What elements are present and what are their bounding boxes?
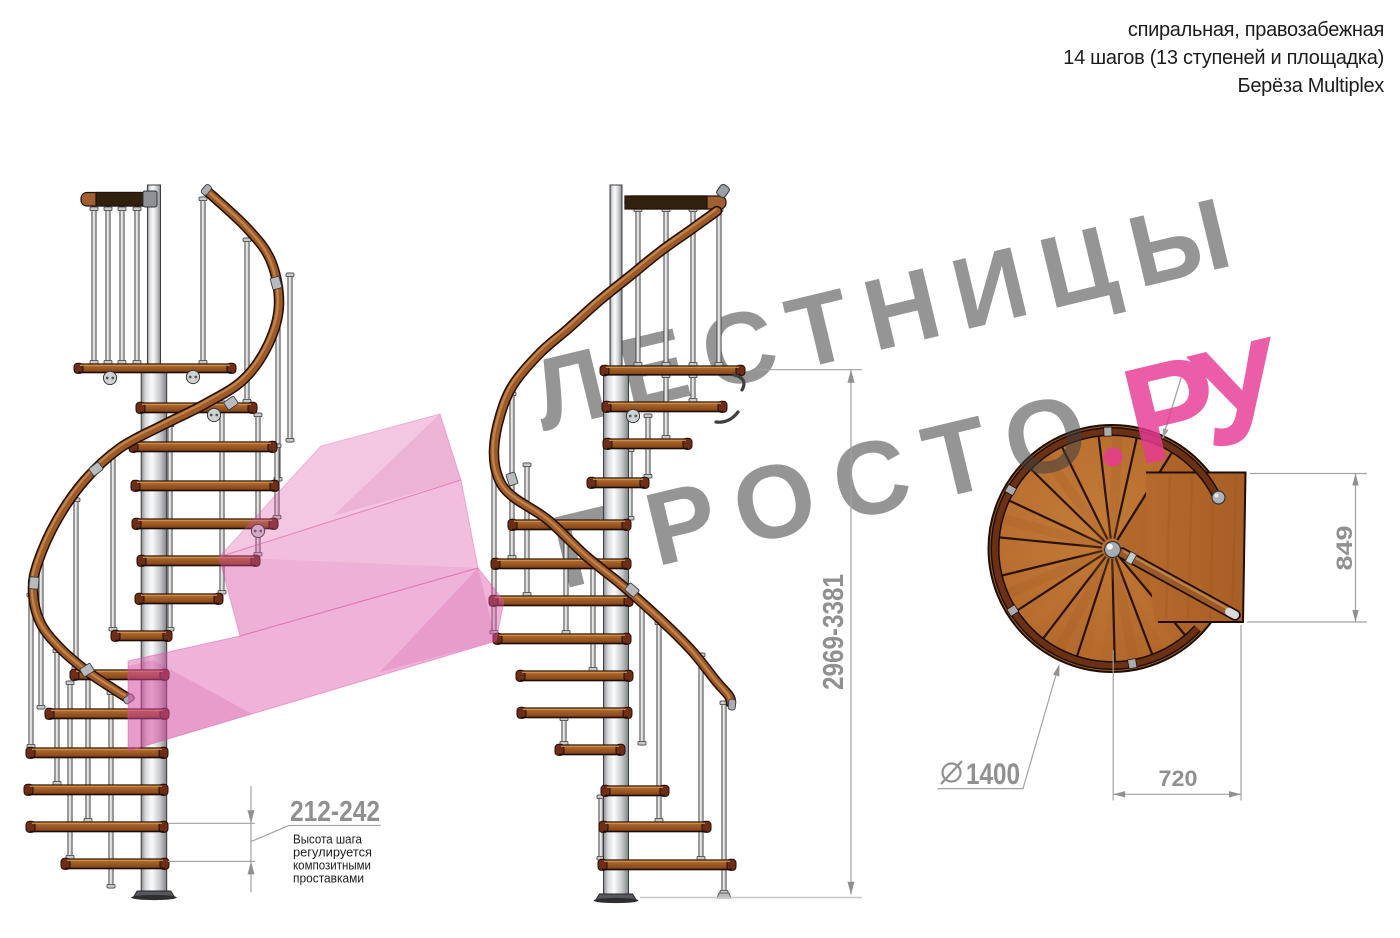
svg-text:композитными: композитными (293, 859, 371, 873)
svg-text:1400: 1400 (966, 758, 1020, 791)
svg-text:849: 849 (1332, 526, 1357, 571)
svg-text:Берёза Multiplex: Берёза Multiplex (1238, 75, 1385, 97)
svg-text:212-242: 212-242 (290, 796, 380, 828)
svg-text:Высота шага: Высота шага (293, 833, 362, 847)
svg-text:проставками: проставками (293, 872, 364, 886)
svg-text:2969-3381: 2969-3381 (818, 574, 850, 690)
svg-text:регулируется: регулируется (293, 846, 372, 860)
svg-text:14 шагов (13 ступеней и площад: 14 шагов (13 ступеней и площадка) (1063, 47, 1384, 69)
svg-text:720: 720 (1159, 766, 1198, 791)
svg-text:РУ: РУ (1109, 308, 1301, 495)
svg-text:спиральная, правозабежная: спиральная, правозабежная (1128, 19, 1384, 41)
